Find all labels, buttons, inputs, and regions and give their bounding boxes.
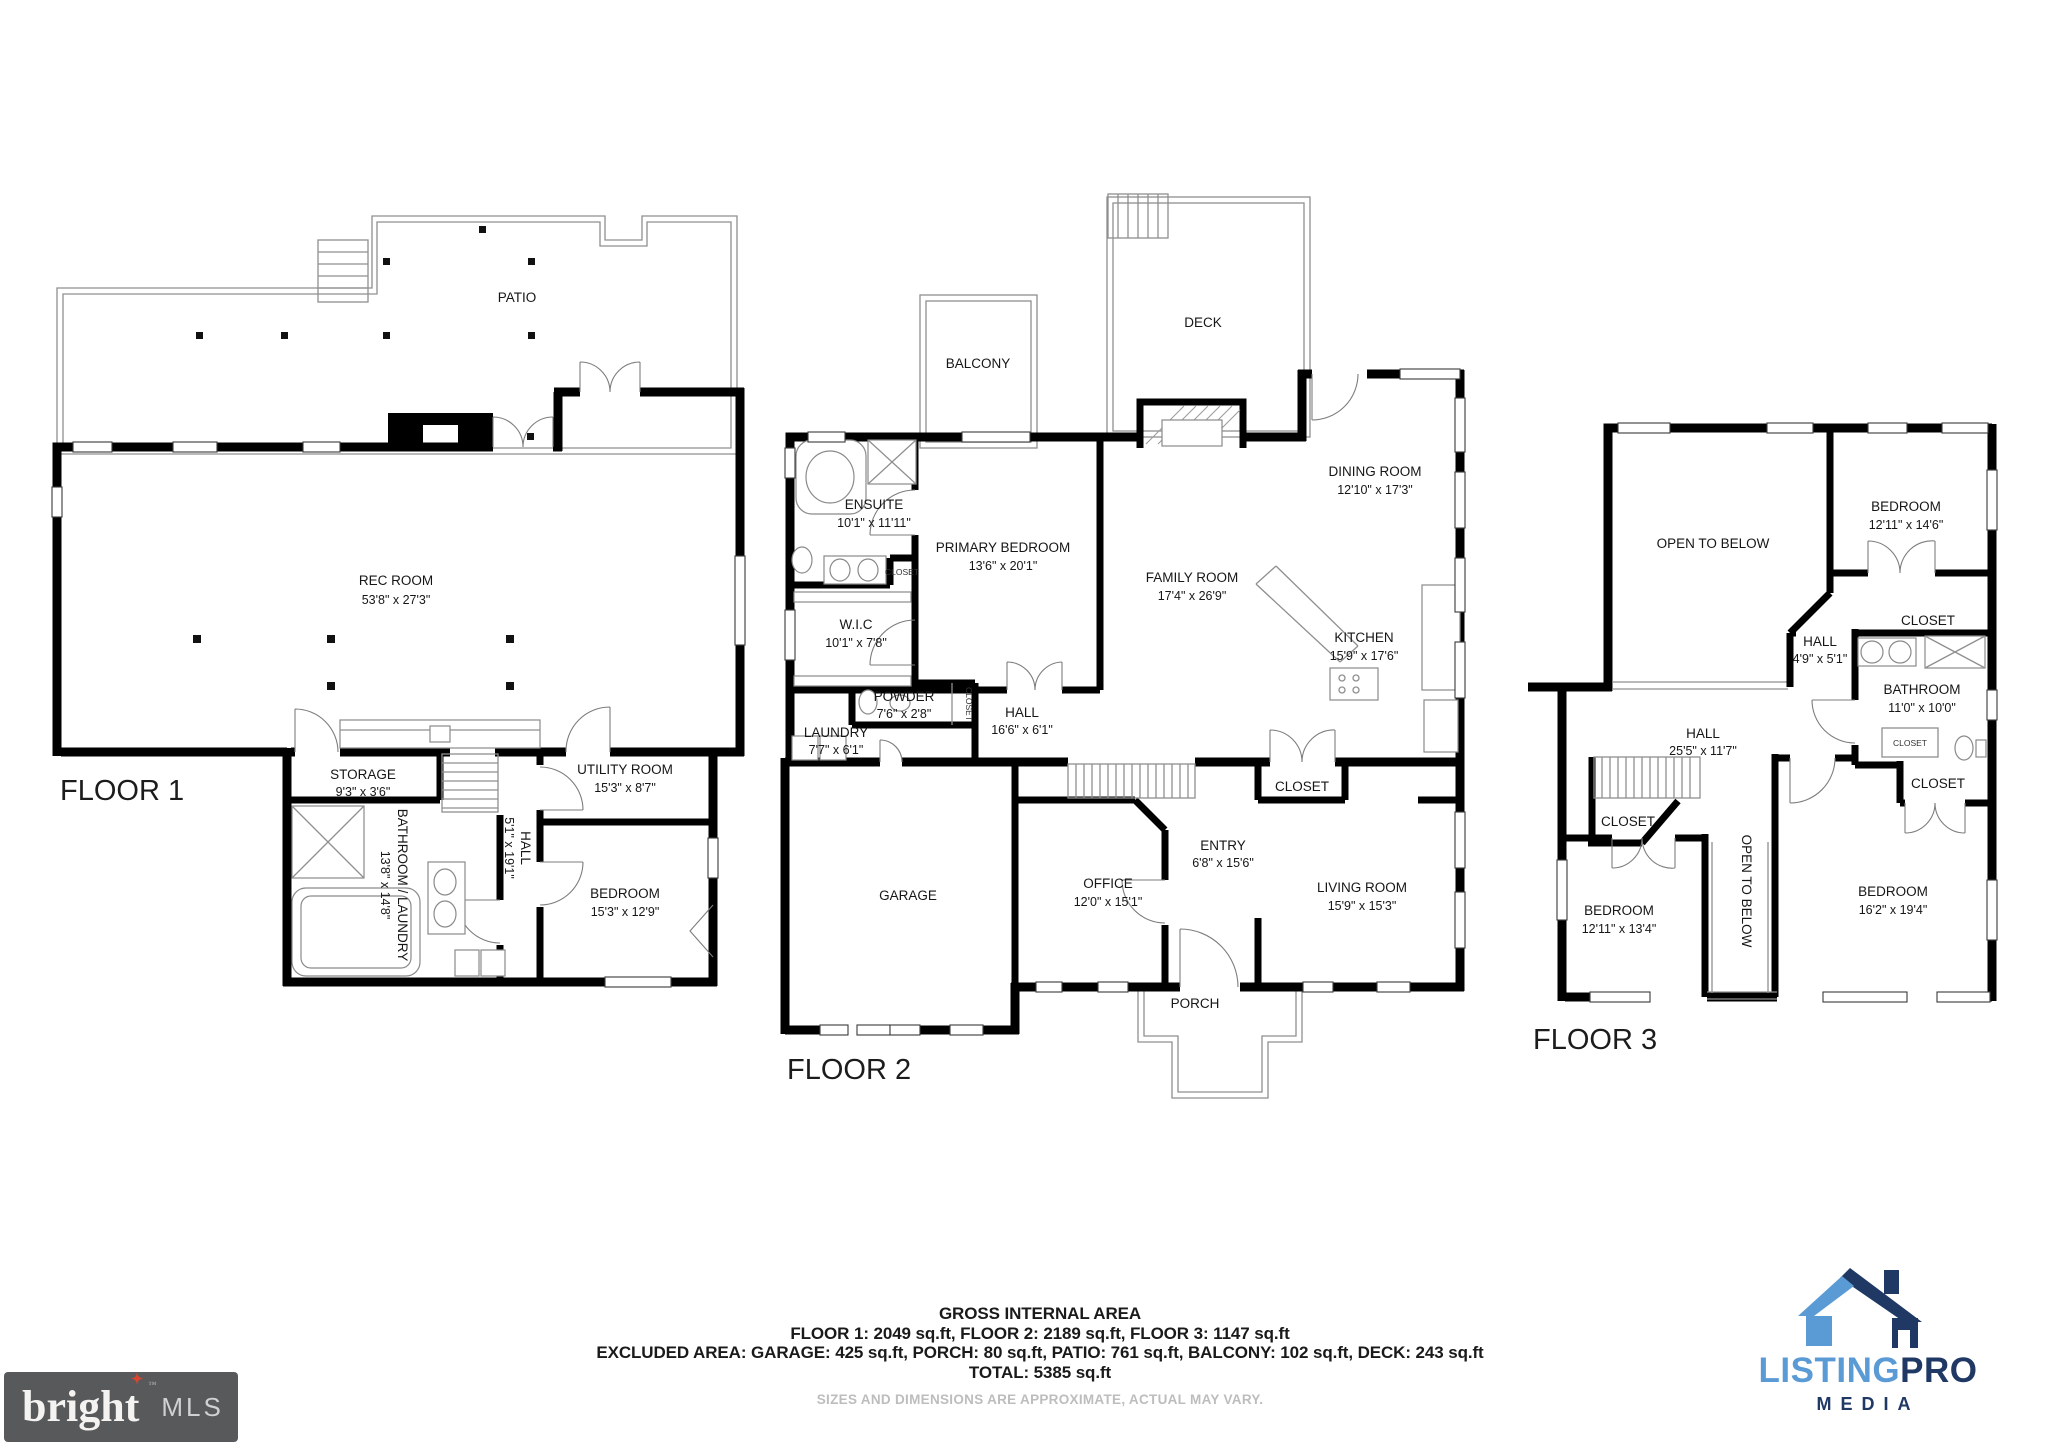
floor3-stairs [1594, 757, 1700, 798]
room-label-patio: PATIO [498, 290, 537, 305]
floor3-title: FLOOR 3 [1533, 1024, 1657, 1056]
room-label-ensuite-closet: CLOSET [885, 567, 919, 577]
summary-disclaimer: SIZES AND DIMENSIONS ARE APPROXIMATE, AC… [424, 1390, 1656, 1410]
room-label-closet3d: CLOSET [1601, 814, 1655, 829]
room-label-ensuite: ENSUITE [845, 497, 904, 512]
room-dims-hall3b: 25'5" x 11'7" [1669, 744, 1737, 758]
room-label-closet3c: CLOSET [1911, 776, 1965, 791]
room-dims-office: 12'0" x 15'1" [1074, 895, 1143, 909]
room-label-utility: UTILITY ROOM [577, 762, 673, 777]
floor2-stairs [1068, 764, 1195, 798]
floorplan-page: PATIO REC ROOM 53'8" x 27'3" STORAGE 9'3… [0, 0, 2048, 1448]
room-dims-family: 17'4" x 26'9" [1158, 589, 1227, 603]
fireplace-floor2 [1140, 402, 1243, 448]
room-label-bedroom3c: BEDROOM [1858, 884, 1928, 899]
room-dims-rec: 53'8" x 27'3" [362, 593, 431, 607]
room-label-closet3a: CLOSET [1901, 613, 1955, 628]
floor-2-plan: BALCONY DECK ENSUITE 10'1" x 11'11" CLOS… [785, 194, 1465, 1098]
room-dims-bedroom3a: 12'11" x 14'6" [1869, 518, 1944, 532]
room-label-living: LIVING ROOM [1317, 880, 1407, 895]
area-summary: GROSS INTERNAL AREA FLOOR 1: 2049 sq.ft,… [424, 1304, 1656, 1410]
room-label-hall2: HALL [1005, 705, 1039, 720]
room-label-bedroom1: BEDROOM [590, 886, 660, 901]
room-dims-hall1: 5'1" x 19'1" [502, 817, 516, 879]
room-dims-bedroom3c: 16'2" x 19'4" [1859, 903, 1928, 917]
floor-1-plan: PATIO REC ROOM 53'8" x 27'3" STORAGE 9'3… [52, 216, 745, 987]
room-label-deck: DECK [1184, 315, 1222, 330]
room-label-balcony: BALCONY [946, 356, 1011, 371]
room-label-dining: DINING ROOM [1329, 464, 1422, 479]
room-dims-hall2: 16'6" x 6'1" [991, 723, 1053, 737]
balcony-outline [920, 295, 1037, 448]
house-icon [1788, 1260, 1948, 1348]
fireplace-floor1 [388, 413, 493, 447]
floor1-title: FLOOR 1 [60, 775, 184, 807]
room-label-bathroom3: BATHROOM [1884, 682, 1961, 697]
room-label-rec: REC ROOM [359, 573, 433, 588]
room-dims-dining: 12'10" x 17'3" [1337, 483, 1413, 497]
room-dims-wic: 10'1" x 7'8" [825, 636, 887, 650]
floor2-title: FLOOR 2 [787, 1054, 911, 1086]
room-label-office: OFFICE [1083, 876, 1133, 891]
room-label-powder-closet: CLOSET [964, 687, 974, 721]
listingpro-logo: LISTINGPRO MEDIA [1700, 1260, 2036, 1415]
summary-floors: FLOOR 1: 2049 sq.ft, FLOOR 2: 2189 sq.ft… [424, 1324, 1656, 1344]
bright-wordmark: bright✦™ [22, 1385, 139, 1429]
room-label-porch: PORCH [1171, 996, 1220, 1011]
room-dims-storage: 9'3" x 3'6" [336, 785, 391, 799]
room-dims-bedroom3b: 12'11" x 13'4" [1582, 922, 1657, 936]
star-icon: ✦ [131, 1373, 144, 1388]
room-label-primary: PRIMARY BEDROOM [936, 540, 1071, 555]
room-dims-entry: 6'8" x 15'6" [1192, 856, 1254, 870]
room-dims-kitchen: 15'9" x 17'6" [1330, 649, 1399, 663]
room-label-laundry: LAUNDRY [804, 725, 868, 740]
room-label-bedroom3b: BEDROOM [1584, 903, 1654, 918]
floor-3-plan: OPEN TO BELOW BEDROOM 12'11" x 14'6" HAL… [1528, 423, 1997, 1056]
room-label-powder: POWDER [874, 689, 935, 704]
room-label-wic: W.I.C [840, 617, 873, 632]
mls-text: MLS [161, 1392, 223, 1423]
room-label-hall3b: HALL [1686, 726, 1720, 741]
room-dims-bathroom3: 11'0" x 10'0" [1888, 701, 1956, 715]
room-dims-powder: 7'6" x 2'8" [877, 707, 932, 721]
column-dots [193, 226, 535, 690]
bright-mls-logo: bright✦™ MLS [4, 1372, 238, 1442]
room-label-entry-closet: CLOSET [1275, 779, 1329, 794]
room-dims-laundry: 7'7" x 6'1" [809, 743, 864, 757]
summary-total: TOTAL: 5385 sq.ft [424, 1363, 1656, 1383]
room-label-closet3b: CLOSET [1893, 738, 1927, 748]
room-dims-hall3a: 4'9" x 5'1" [1793, 652, 1848, 666]
room-dims-bath-laundry: 13'8" x 14'8" [378, 851, 392, 920]
room-label-bath-laundry: BATHROOM / LAUNDRY [395, 809, 410, 962]
floorplan-drawing: PATIO REC ROOM 53'8" x 27'3" STORAGE 9'3… [0, 0, 2048, 1448]
room-label-bedroom3a: BEDROOM [1871, 499, 1941, 514]
room-label-kitchen: KITCHEN [1334, 630, 1393, 645]
room-dims-utility: 15'3" x 8'7" [594, 781, 656, 795]
room-label-open2: OPEN TO BELOW [1739, 835, 1754, 948]
rec-room-counter [340, 720, 540, 748]
room-dims-ensuite: 10'1" x 11'11" [837, 516, 911, 530]
room-dims-primary: 13'6" x 20'1" [969, 559, 1038, 573]
listingpro-wordmark: LISTINGPRO [1700, 1353, 2036, 1390]
room-label-entry: ENTRY [1200, 838, 1246, 853]
room-dims-living: 15'9" x 15'3" [1328, 899, 1397, 913]
summary-excluded: EXCLUDED AREA: GARAGE: 425 sq.ft, PORCH:… [424, 1343, 1656, 1363]
porch-outline [1138, 991, 1302, 1098]
summary-title: GROSS INTERNAL AREA [424, 1304, 1656, 1324]
room-dims-bedroom1: 15'3" x 12'9" [591, 905, 660, 919]
floor1-stairs [442, 754, 498, 812]
trademark-symbol: ™ [148, 1381, 156, 1389]
room-label-open1: OPEN TO BELOW [1657, 536, 1770, 551]
listingpro-media-text: MEDIA [1700, 1394, 2036, 1415]
room-label-family: FAMILY ROOM [1146, 570, 1239, 585]
room-label-hall3a: HALL [1803, 634, 1837, 649]
room-label-hall1: HALL [518, 831, 533, 865]
room-label-storage: STORAGE [330, 767, 396, 782]
room-label-garage: GARAGE [879, 888, 937, 903]
